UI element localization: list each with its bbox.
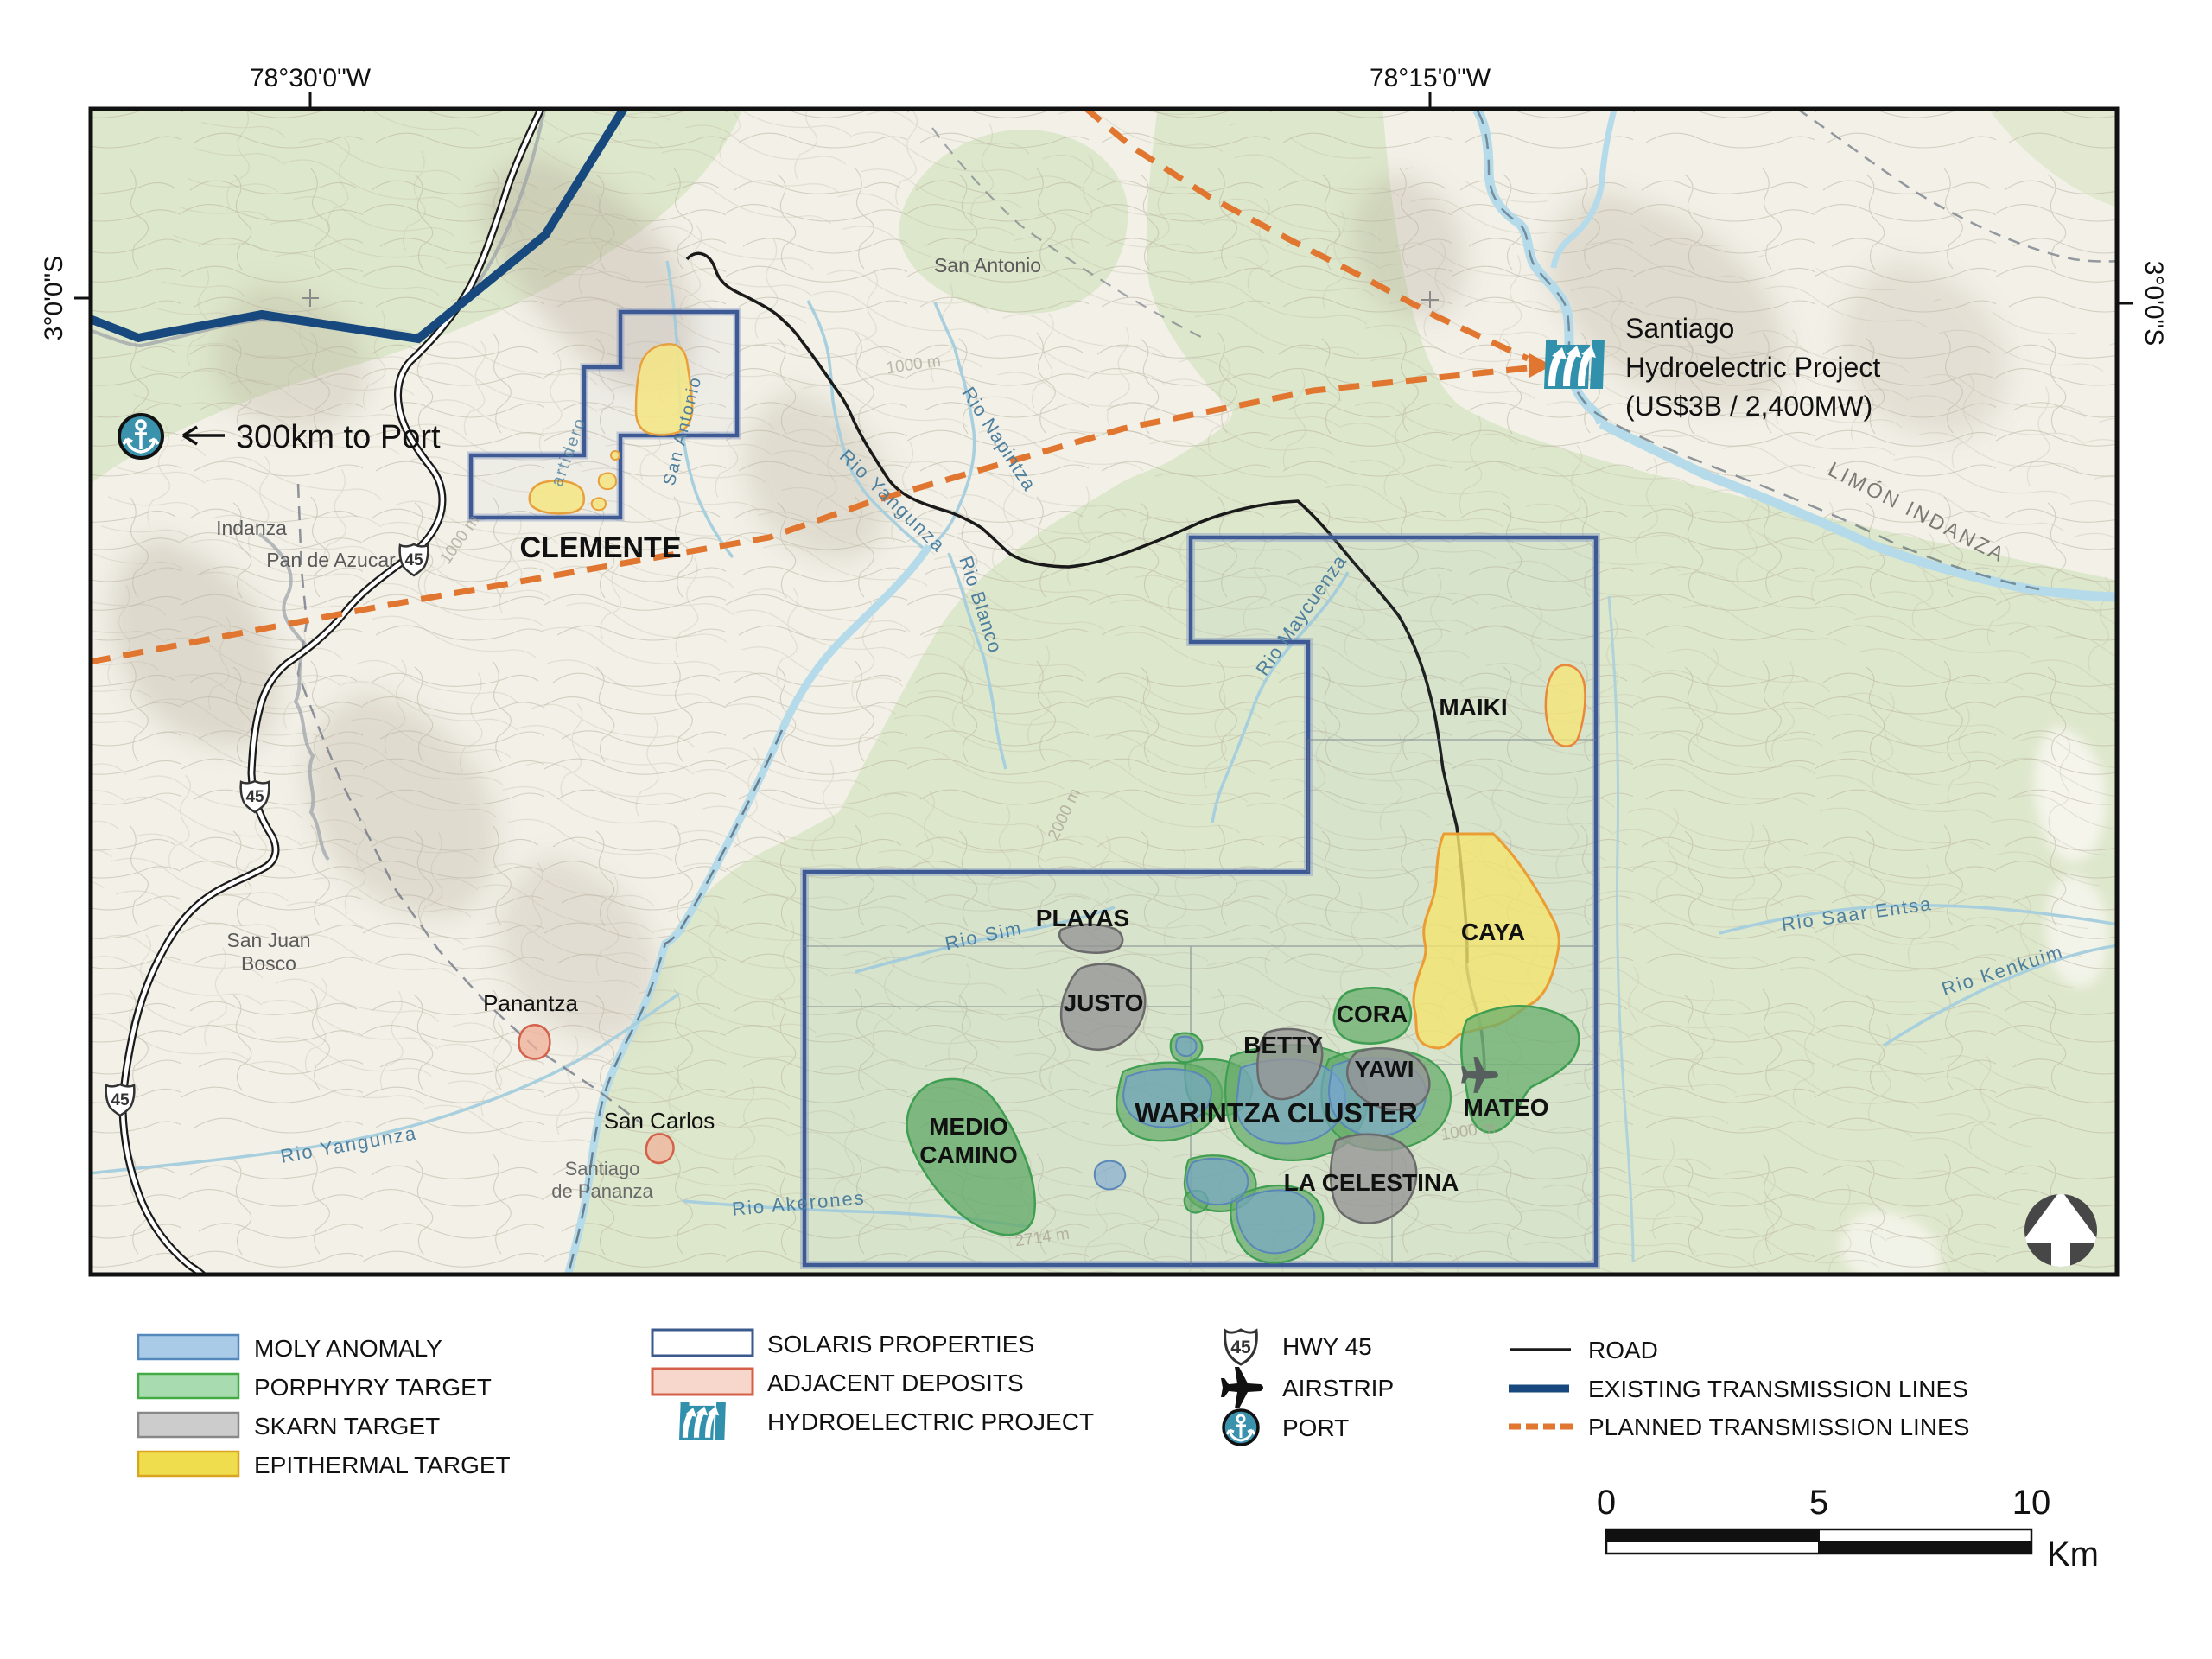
svg-text:45: 45 bbox=[1230, 1338, 1251, 1357]
svg-text:PORPHYRY TARGET: PORPHYRY TARGET bbox=[254, 1374, 492, 1401]
svg-text:CLEMENTE: CLEMENTE bbox=[520, 531, 682, 564]
svg-text:SOLARIS PROPERTIES: SOLARIS PROPERTIES bbox=[767, 1331, 1034, 1357]
svg-text:MOLY ANOMALY: MOLY ANOMALY bbox=[254, 1335, 442, 1362]
svg-text:ADJACENT DEPOSITS: ADJACENT DEPOSITS bbox=[767, 1370, 1024, 1396]
svg-text:Santiago: Santiago bbox=[565, 1158, 640, 1179]
svg-text:AIRSTRIP: AIRSTRIP bbox=[1282, 1375, 1394, 1402]
svg-text:Km: Km bbox=[2047, 1535, 2099, 1573]
svg-text:WARINTZA CLUSTER: WARINTZA CLUSTER bbox=[1135, 1097, 1418, 1128]
svg-text:PORT: PORT bbox=[1282, 1414, 1349, 1441]
svg-text:EXISTING TRANSMISSION LINES: EXISTING TRANSMISSION LINES bbox=[1588, 1376, 1968, 1402]
svg-text:SKARN TARGET: SKARN TARGET bbox=[254, 1413, 440, 1440]
svg-text:San Carlos: San Carlos bbox=[604, 1108, 715, 1134]
svg-text:Hydroelectric Project: Hydroelectric Project bbox=[1625, 352, 1880, 383]
svg-text:45: 45 bbox=[245, 788, 264, 806]
svg-text:0: 0 bbox=[1597, 1484, 1616, 1522]
svg-text:HYDROELECTRIC PROJECT: HYDROELECTRIC PROJECT bbox=[767, 1408, 1094, 1435]
svg-text:Pan de Azucar: Pan de Azucar bbox=[266, 549, 396, 571]
svg-text:78°30'0"W: 78°30'0"W bbox=[250, 64, 372, 92]
svg-text:PLANNED TRANSMISSION LINES: PLANNED TRANSMISSION LINES bbox=[1588, 1414, 1969, 1440]
svg-text:BETTY: BETTY bbox=[1243, 1032, 1323, 1058]
svg-text:San Juan: San Juan bbox=[226, 929, 310, 951]
svg-text:78°15'0"W: 78°15'0"W bbox=[1370, 64, 1491, 92]
svg-text:10: 10 bbox=[2012, 1484, 2051, 1522]
svg-text:MAIKI: MAIKI bbox=[1439, 694, 1507, 721]
svg-text:Indanza: Indanza bbox=[216, 517, 287, 539]
svg-text:LA CELESTINA: LA CELESTINA bbox=[1284, 1169, 1459, 1196]
svg-text:de Pananza: de Pananza bbox=[551, 1180, 653, 1202]
svg-text:300km to Port: 300km to Port bbox=[236, 419, 441, 455]
svg-text:(US$3B / 2,400MW): (US$3B / 2,400MW) bbox=[1625, 391, 1872, 422]
svg-text:San Antonio: San Antonio bbox=[934, 254, 1041, 276]
svg-text:HWY 45: HWY 45 bbox=[1282, 1333, 1372, 1360]
svg-text:5: 5 bbox=[1809, 1484, 1828, 1522]
svg-text:Panantza: Panantza bbox=[483, 990, 578, 1016]
svg-text:CAMINO: CAMINO bbox=[919, 1141, 1018, 1168]
svg-text:MATEO: MATEO bbox=[1463, 1094, 1548, 1121]
svg-text:45: 45 bbox=[111, 1091, 130, 1109]
svg-text:EPITHERMAL TARGET: EPITHERMAL TARGET bbox=[254, 1452, 511, 1478]
svg-text:ROAD: ROAD bbox=[1588, 1337, 1658, 1363]
svg-text:PLAYAS: PLAYAS bbox=[1036, 905, 1129, 931]
svg-text:CAYA: CAYA bbox=[1461, 918, 1525, 945]
svg-text:MEDIO: MEDIO bbox=[929, 1113, 1008, 1140]
svg-text:Bosco: Bosco bbox=[241, 952, 296, 975]
svg-text:Santiago: Santiago bbox=[1625, 313, 1734, 344]
svg-text:CORA: CORA bbox=[1337, 1001, 1408, 1027]
svg-text:JUSTO: JUSTO bbox=[1064, 989, 1144, 1016]
svg-text:YAWI: YAWI bbox=[1355, 1056, 1414, 1083]
svg-text:45: 45 bbox=[404, 551, 423, 569]
svg-text:3°0'0"S: 3°0'0"S bbox=[40, 256, 68, 340]
svg-text:3°0'0"S: 3°0'0"S bbox=[2139, 261, 2168, 346]
